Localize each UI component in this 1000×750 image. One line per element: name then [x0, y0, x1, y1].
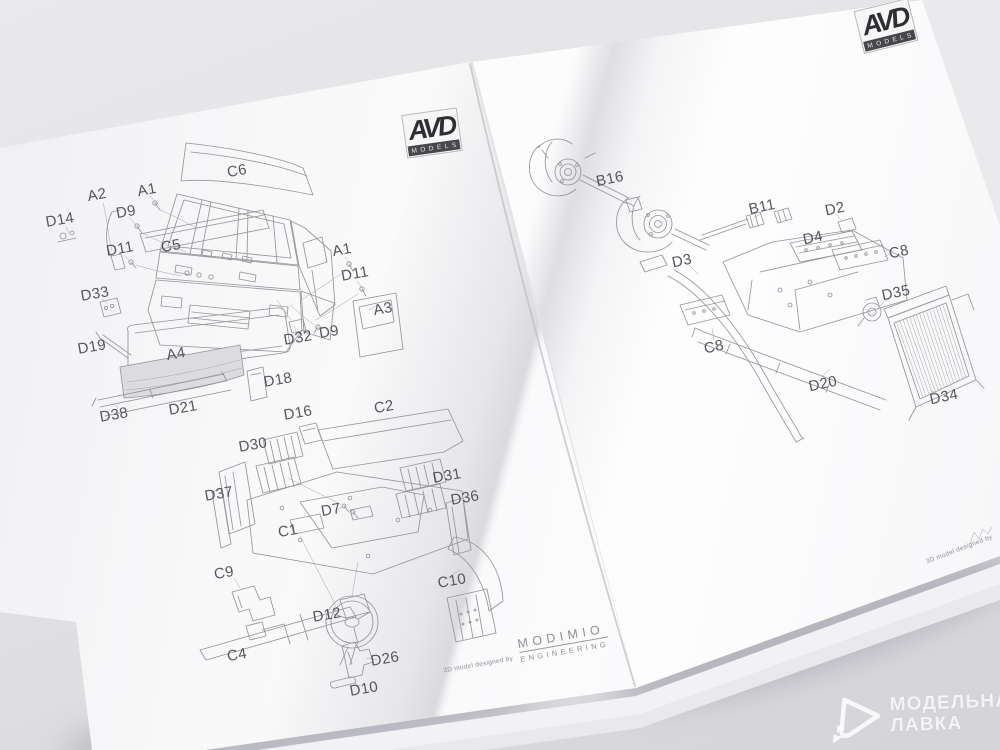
drivetrain-diagram-labels: B16B11D2D4C8D3D35C8D20D34: [0, 0, 1000, 750]
paper-plane-logo-icon: [831, 690, 883, 744]
part-label-d3: D3: [670, 251, 693, 272]
part-label-d35: D35: [880, 282, 912, 305]
avd-models-logo: AVD MODELS: [401, 107, 463, 158]
watermark-text: МОДЕЛЬНАЯ ЛАВКА: [889, 690, 1000, 737]
shop-watermark: МОДЕЛЬНАЯ ЛАВКА: [831, 685, 1000, 744]
part-label-b16: B16: [595, 168, 626, 190]
part-label-c8: C8: [702, 337, 725, 358]
part-label-d20: D20: [807, 373, 839, 396]
part-label-d2: D2: [823, 199, 846, 220]
part-label-c8: C8: [887, 242, 910, 263]
part-label-d4: D4: [801, 228, 824, 249]
part-label-d34: D34: [928, 386, 960, 409]
part-label-b11: B11: [747, 196, 777, 218]
photo-of-open-instruction-booklet: C6A2A1D9D14C5D11A1D11D33A3D9D32D19A4D18D…: [0, 0, 1000, 750]
watermark-line1: МОДЕЛЬНАЯ: [889, 690, 1000, 716]
watermark-line2: ЛАВКА: [890, 711, 1000, 737]
